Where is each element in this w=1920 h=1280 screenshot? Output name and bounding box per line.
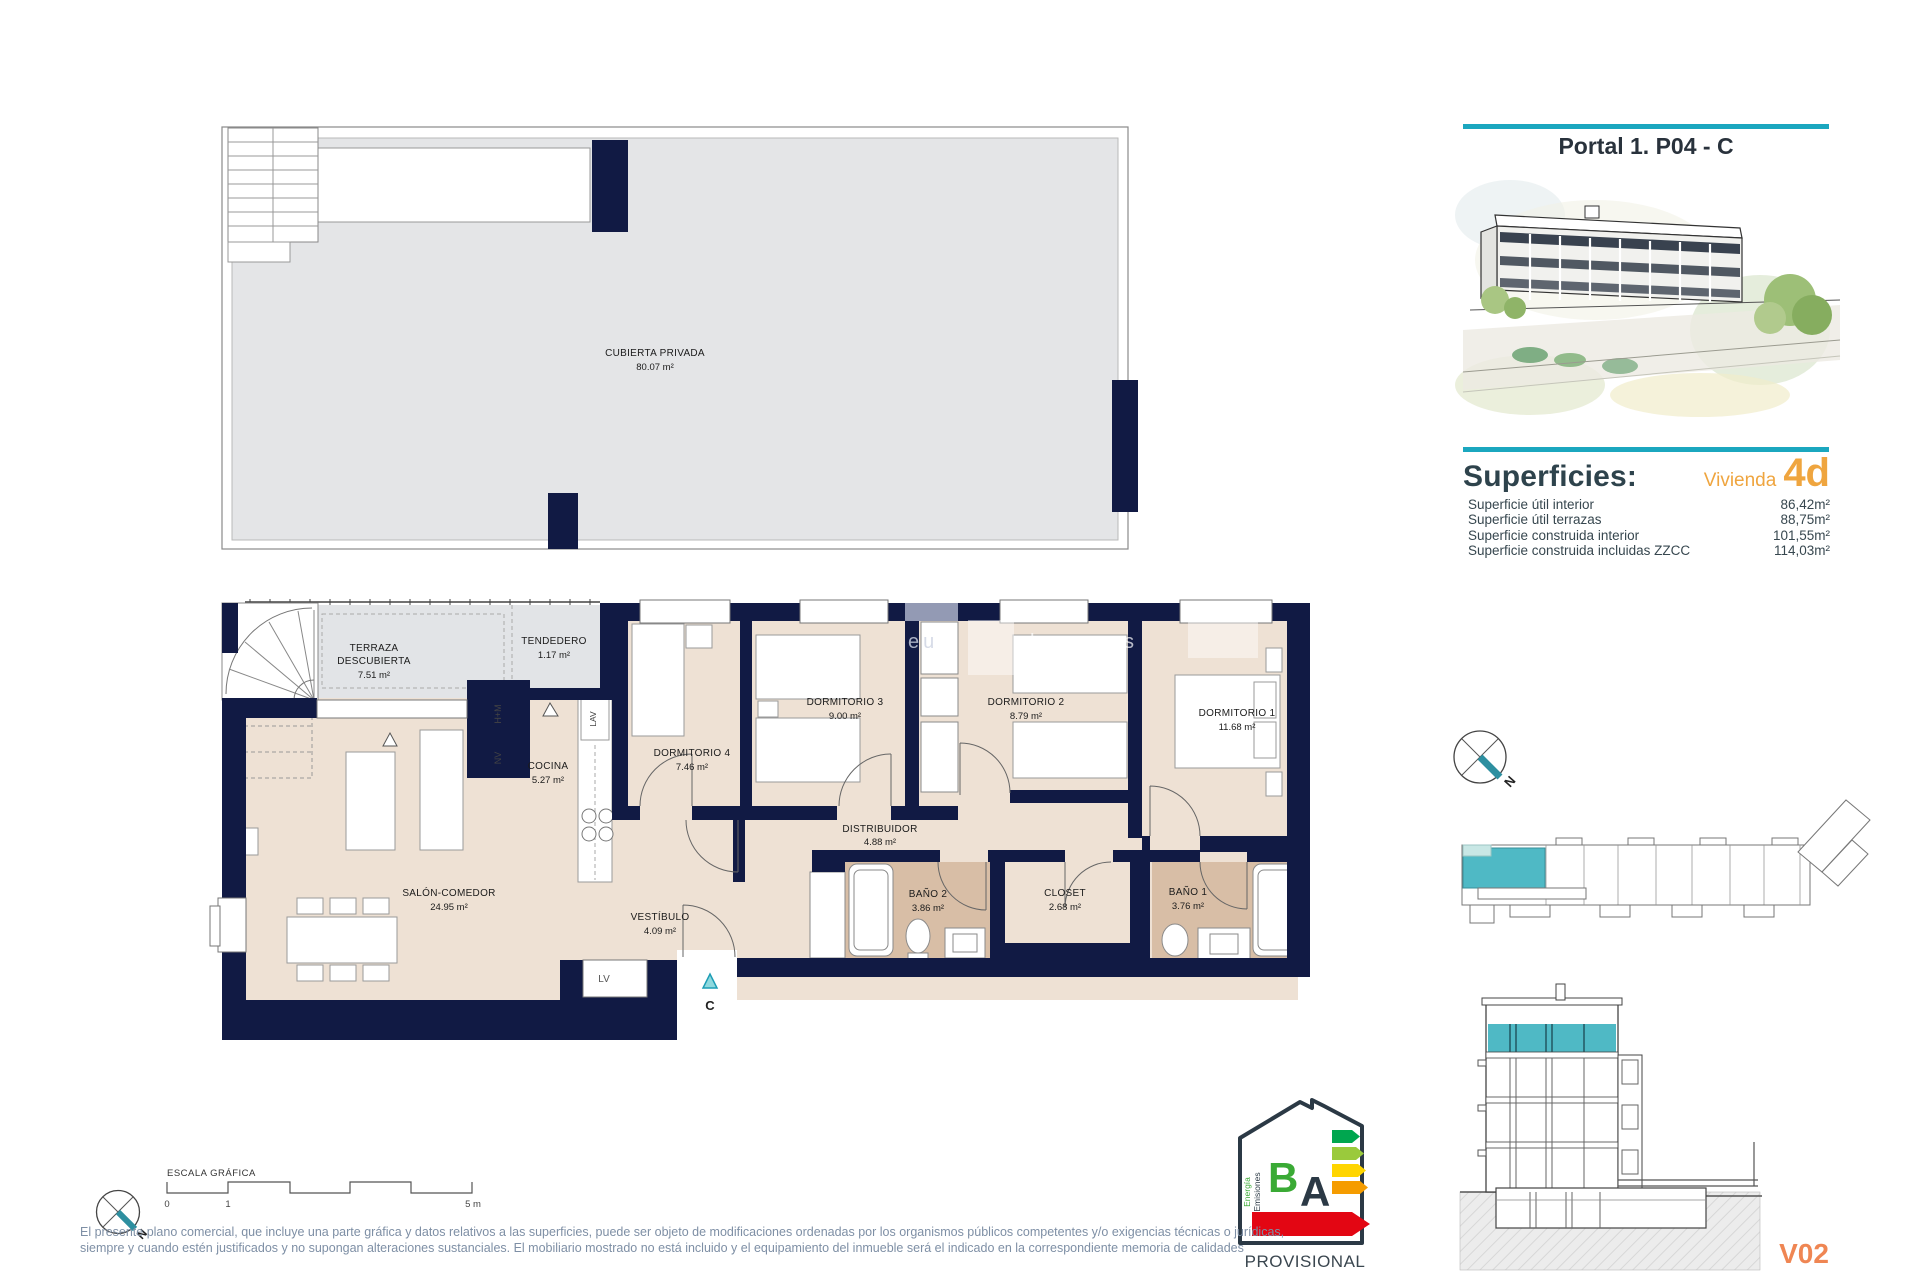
- scale-tick-1: 1: [225, 1199, 230, 1210]
- superficies-row: Superficie útil terrazas 88,75m²: [1468, 512, 1830, 527]
- label-nv: NV: [493, 752, 503, 765]
- svg-text:11.68 m²: 11.68 m²: [1219, 722, 1256, 733]
- site-plan: [1462, 800, 1870, 923]
- superficies-divider: [1463, 447, 1829, 452]
- emisiones-label: Emisiones: [1252, 1172, 1262, 1211]
- svg-text:7.51 m²: 7.51 m²: [358, 670, 390, 681]
- building-illustration: [1455, 180, 1840, 417]
- watermark-part1: eu: [908, 631, 938, 653]
- superficies-row: Superficie construida interior 101,55m²: [1468, 528, 1830, 543]
- watermark-part2: homes: [1030, 631, 1145, 653]
- superficies-row: Superficie construida incluidas ZZCC 114…: [1468, 543, 1830, 558]
- roof-room-label: CUBIERTA PRIVADA: [605, 348, 705, 359]
- svg-text:DESCUBIERTA: DESCUBIERTA: [337, 656, 411, 667]
- main-floor-plan: eu homes TERRAZA DESCUBIERTA 7.51 m² TEN…: [210, 599, 1310, 1040]
- svg-text:9.00 m²: 9.00 m²: [829, 711, 861, 722]
- svg-text:1.17 m²: 1.17 m²: [538, 650, 570, 661]
- svg-text:24.95 m²: 24.95 m²: [430, 902, 468, 913]
- label-lv: LV: [598, 974, 610, 985]
- label-bano2: BAÑO 2: [909, 887, 948, 900]
- plan-sheet: CUBIERTA PRIVADA 80.07 m²: [0, 0, 1920, 1280]
- label-salon: SALÓN-COMEDOR: [402, 886, 495, 899]
- row-label: Superficie construida interior: [1468, 528, 1639, 543]
- row-value: 101,55m²: [1773, 528, 1830, 543]
- svg-text:3.76 m²: 3.76 m²: [1172, 901, 1204, 912]
- svg-text:4.09 m²: 4.09 m²: [644, 926, 676, 937]
- label-dormitorio2: DORMITORIO 2: [988, 697, 1065, 708]
- row-value: 86,42m²: [1780, 497, 1830, 512]
- label-hm: H+M: [493, 704, 503, 723]
- energy-rating-logo: Energía Emisiones B A: [1240, 1100, 1370, 1243]
- disclaimer: El presente plano comercial, que incluye…: [80, 1224, 1510, 1256]
- vivienda-code: 4d: [1783, 456, 1830, 490]
- compass-right: N: [1454, 731, 1519, 790]
- energy-letter-a: A: [1300, 1168, 1330, 1215]
- label-dormitorio3: DORMITORIO 3: [807, 697, 884, 708]
- energy-letter-b: B: [1268, 1154, 1298, 1201]
- row-label: Superficie útil terrazas: [1468, 512, 1602, 527]
- label-lav: LAV: [588, 711, 598, 727]
- roof-plan: CUBIERTA PRIVADA 80.07 m²: [222, 127, 1138, 549]
- row-value: 88,75m²: [1780, 512, 1830, 527]
- north-label-right: N: [1501, 773, 1518, 790]
- label-closet: CLOSET: [1044, 888, 1086, 899]
- scale-bar: ESCALA GRÁFICA 0 1 5 m: [164, 1168, 481, 1210]
- superficies-table: Superficie útil interior 86,42m² Superfi…: [1463, 497, 1830, 559]
- label-tendedero: TENDEDERO: [521, 636, 586, 647]
- label-dormitorio1: DORMITORIO 1: [1199, 708, 1276, 719]
- page-title: Portal 1. P04 - C: [1463, 133, 1829, 160]
- drawing-canvas: CUBIERTA PRIVADA 80.07 m²: [0, 0, 1920, 1280]
- scale-tick-0: 0: [164, 1199, 169, 1210]
- entry-letter: C: [705, 998, 715, 1013]
- svg-text:5.27 m²: 5.27 m²: [532, 775, 564, 786]
- row-label: Superficie construida incluidas ZZCC: [1468, 543, 1690, 558]
- row-value: 114,03m²: [1774, 543, 1830, 558]
- superficies-heading: Superficies:: [1463, 460, 1637, 494]
- svg-text:3.86 m²: 3.86 m²: [912, 903, 944, 914]
- label-bano1: BAÑO 1: [1169, 885, 1208, 898]
- version-code: V02: [1762, 1238, 1846, 1270]
- energia-label: Energía: [1242, 1177, 1252, 1207]
- header-divider: [1463, 124, 1829, 129]
- label-vestibulo: VESTÍBULO: [631, 910, 690, 923]
- row-label: Superficie útil interior: [1468, 497, 1594, 512]
- scale-title: ESCALA GRÁFICA: [167, 1168, 256, 1179]
- disclaimer-line1: El presente plano comercial, que incluye…: [80, 1224, 1510, 1240]
- label-cocina: COCINA: [528, 761, 569, 772]
- scale-tick-5: 5 m: [465, 1199, 481, 1210]
- svg-text:8.79 m²: 8.79 m²: [1010, 711, 1042, 722]
- label-terraza: TERRAZA: [350, 643, 399, 654]
- vivienda-label: Vivienda: [1704, 470, 1777, 492]
- svg-text:2.68 m²: 2.68 m²: [1049, 902, 1081, 913]
- roof-stair: [228, 128, 318, 262]
- label-distribuidor: DISTRIBUIDOR: [842, 824, 917, 835]
- label-dormitorio4: DORMITORIO 4: [654, 748, 731, 759]
- svg-text:4.88 m²: 4.88 m²: [864, 837, 896, 848]
- svg-text:7.46 m²: 7.46 m²: [676, 762, 708, 773]
- disclaimer-line2: siempre y cuando estén justificados y no…: [80, 1240, 1510, 1256]
- superficies-row: Superficie útil interior 86,42m²: [1468, 497, 1830, 512]
- roof-room-area: 80.07 m²: [636, 362, 674, 373]
- superficies-panel: Superficies: Vivienda 4d Superficie útil…: [1463, 456, 1830, 559]
